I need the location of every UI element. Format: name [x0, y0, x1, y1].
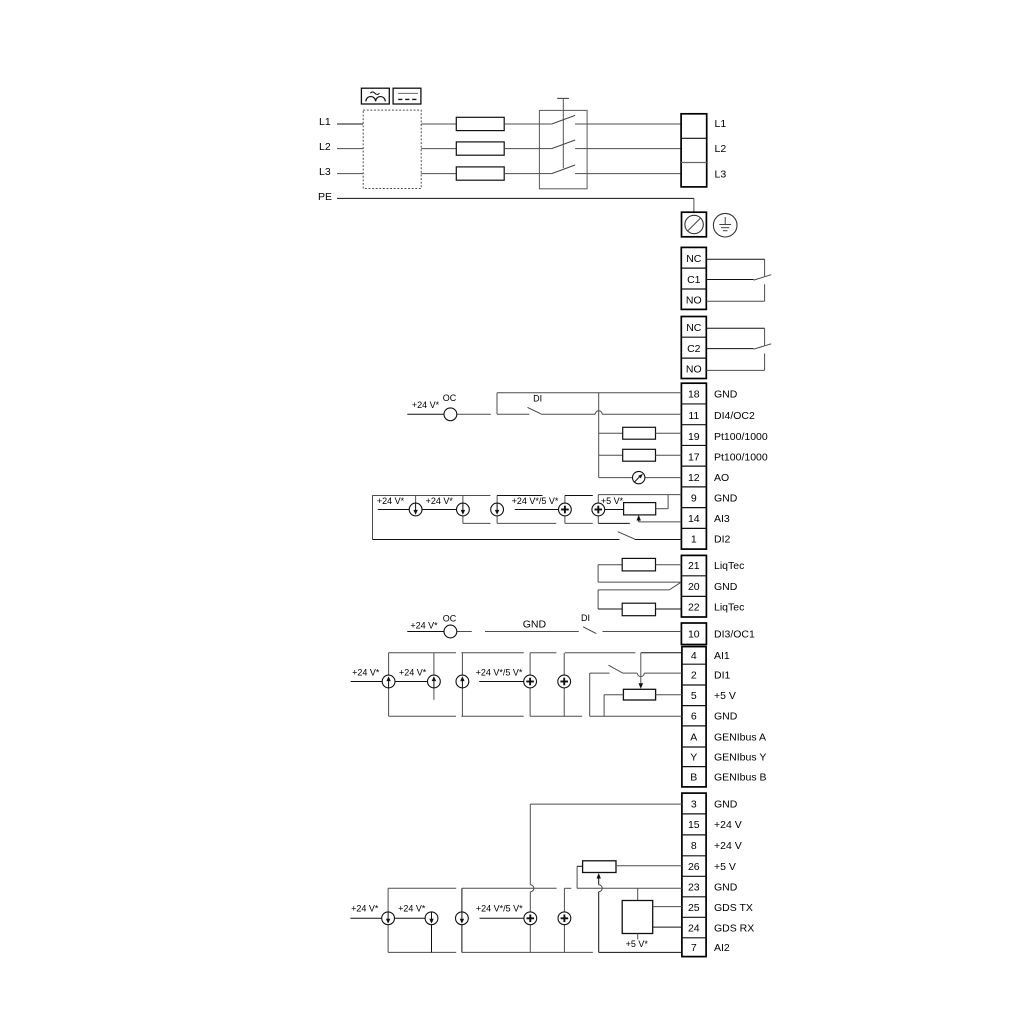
- svg-text:GND: GND: [714, 581, 738, 593]
- svg-text:GENIbus A: GENIbus A: [714, 731, 766, 743]
- svg-text:L3: L3: [715, 168, 727, 180]
- svg-text:AI1: AI1: [714, 650, 730, 662]
- svg-text:LiqTec: LiqTec: [714, 560, 744, 572]
- svg-text:DI3/OC1: DI3/OC1: [714, 629, 755, 641]
- svg-text:GDS TX: GDS TX: [714, 902, 753, 914]
- svg-text:12: 12: [688, 472, 700, 484]
- svg-text:GND: GND: [714, 389, 738, 401]
- svg-text:24: 24: [688, 922, 700, 934]
- svg-text:B: B: [690, 772, 697, 784]
- svg-text:6: 6: [691, 711, 697, 723]
- svg-text:C1: C1: [687, 274, 701, 286]
- svg-text:L3: L3: [319, 166, 331, 178]
- svg-text:21: 21: [688, 560, 700, 572]
- svg-text:+24 V*: +24 V*: [412, 400, 440, 410]
- svg-text:20: 20: [688, 581, 700, 593]
- svg-text:A: A: [690, 731, 697, 743]
- svg-text:AI2: AI2: [714, 942, 730, 954]
- svg-text:+24 V*: +24 V*: [352, 667, 380, 677]
- svg-text:1: 1: [691, 534, 697, 546]
- svg-text:DI: DI: [533, 394, 542, 404]
- svg-text:NC: NC: [686, 253, 702, 265]
- svg-text:8: 8: [691, 840, 697, 852]
- svg-text:GND: GND: [714, 798, 738, 810]
- svg-text:18: 18: [688, 389, 700, 401]
- svg-text:GENIbus Y: GENIbus Y: [714, 752, 766, 764]
- svg-text:15: 15: [688, 819, 700, 831]
- svg-text:GND: GND: [714, 711, 738, 723]
- svg-text:11: 11: [688, 410, 699, 422]
- svg-text:7: 7: [691, 942, 697, 954]
- svg-text:OC: OC: [443, 393, 457, 403]
- svg-text:L1: L1: [319, 116, 331, 128]
- svg-text:+24 V*: +24 V*: [377, 496, 405, 506]
- svg-text:14: 14: [688, 513, 700, 525]
- svg-text:3: 3: [691, 798, 697, 810]
- svg-text:+5 V*: +5 V*: [626, 939, 649, 949]
- svg-text:+5 V: +5 V: [714, 861, 736, 873]
- svg-text:+24 V*: +24 V*: [398, 904, 426, 914]
- svg-text:+24 V*/5 V*: +24 V*/5 V*: [476, 667, 523, 677]
- svg-text:DI: DI: [581, 613, 590, 623]
- svg-text:+24 V*/5 V*: +24 V*/5 V*: [476, 904, 523, 914]
- svg-text:DI1: DI1: [714, 669, 731, 681]
- svg-text:NC: NC: [686, 322, 702, 334]
- svg-text:10: 10: [688, 629, 700, 641]
- svg-text:25: 25: [688, 902, 700, 914]
- svg-text:GND: GND: [523, 619, 547, 631]
- svg-text:17: 17: [688, 452, 700, 464]
- svg-text:19: 19: [688, 431, 700, 443]
- svg-text:+24 V*: +24 V*: [410, 620, 438, 630]
- svg-text:+24 V*/5 V*: +24 V*/5 V*: [512, 496, 559, 506]
- svg-text:NO: NO: [686, 364, 702, 376]
- svg-text:Y: Y: [690, 752, 697, 764]
- svg-text:L2: L2: [319, 141, 331, 153]
- svg-text:GENIbus B: GENIbus B: [714, 772, 767, 784]
- svg-text:+24 V: +24 V: [714, 840, 742, 852]
- svg-text:DI2: DI2: [714, 534, 731, 546]
- svg-text:22: 22: [688, 601, 700, 613]
- svg-text:2: 2: [691, 669, 697, 681]
- svg-text:AI3: AI3: [714, 513, 730, 525]
- svg-text:L1: L1: [715, 118, 727, 130]
- svg-text:+24 V*: +24 V*: [351, 904, 379, 914]
- svg-text:C2: C2: [687, 343, 701, 355]
- svg-text:Pt100/1000: Pt100/1000: [714, 431, 768, 443]
- svg-text:LiqTec: LiqTec: [714, 601, 744, 613]
- svg-text:PE: PE: [318, 191, 332, 203]
- svg-text:NO: NO: [686, 295, 702, 307]
- svg-text:4: 4: [691, 650, 697, 662]
- svg-text:5: 5: [691, 690, 697, 702]
- svg-text:OC: OC: [443, 614, 457, 624]
- svg-text:DI4/OC2: DI4/OC2: [714, 410, 755, 422]
- svg-text:9: 9: [691, 493, 697, 505]
- svg-text:L2: L2: [715, 143, 727, 155]
- svg-text:+24 V: +24 V: [714, 819, 742, 831]
- svg-text:GND: GND: [714, 493, 738, 505]
- svg-text:AO: AO: [714, 472, 729, 484]
- svg-text:+5 V: +5 V: [714, 690, 736, 702]
- svg-text:23: 23: [688, 881, 700, 893]
- svg-text:GND: GND: [714, 881, 738, 893]
- svg-text:GDS RX: GDS RX: [714, 922, 754, 934]
- svg-text:+24 V*: +24 V*: [426, 496, 454, 506]
- svg-text:26: 26: [688, 861, 700, 873]
- svg-text:+5 V*: +5 V*: [601, 496, 624, 506]
- svg-text:Pt100/1000: Pt100/1000: [714, 452, 768, 464]
- svg-text:+24 V*: +24 V*: [399, 667, 427, 677]
